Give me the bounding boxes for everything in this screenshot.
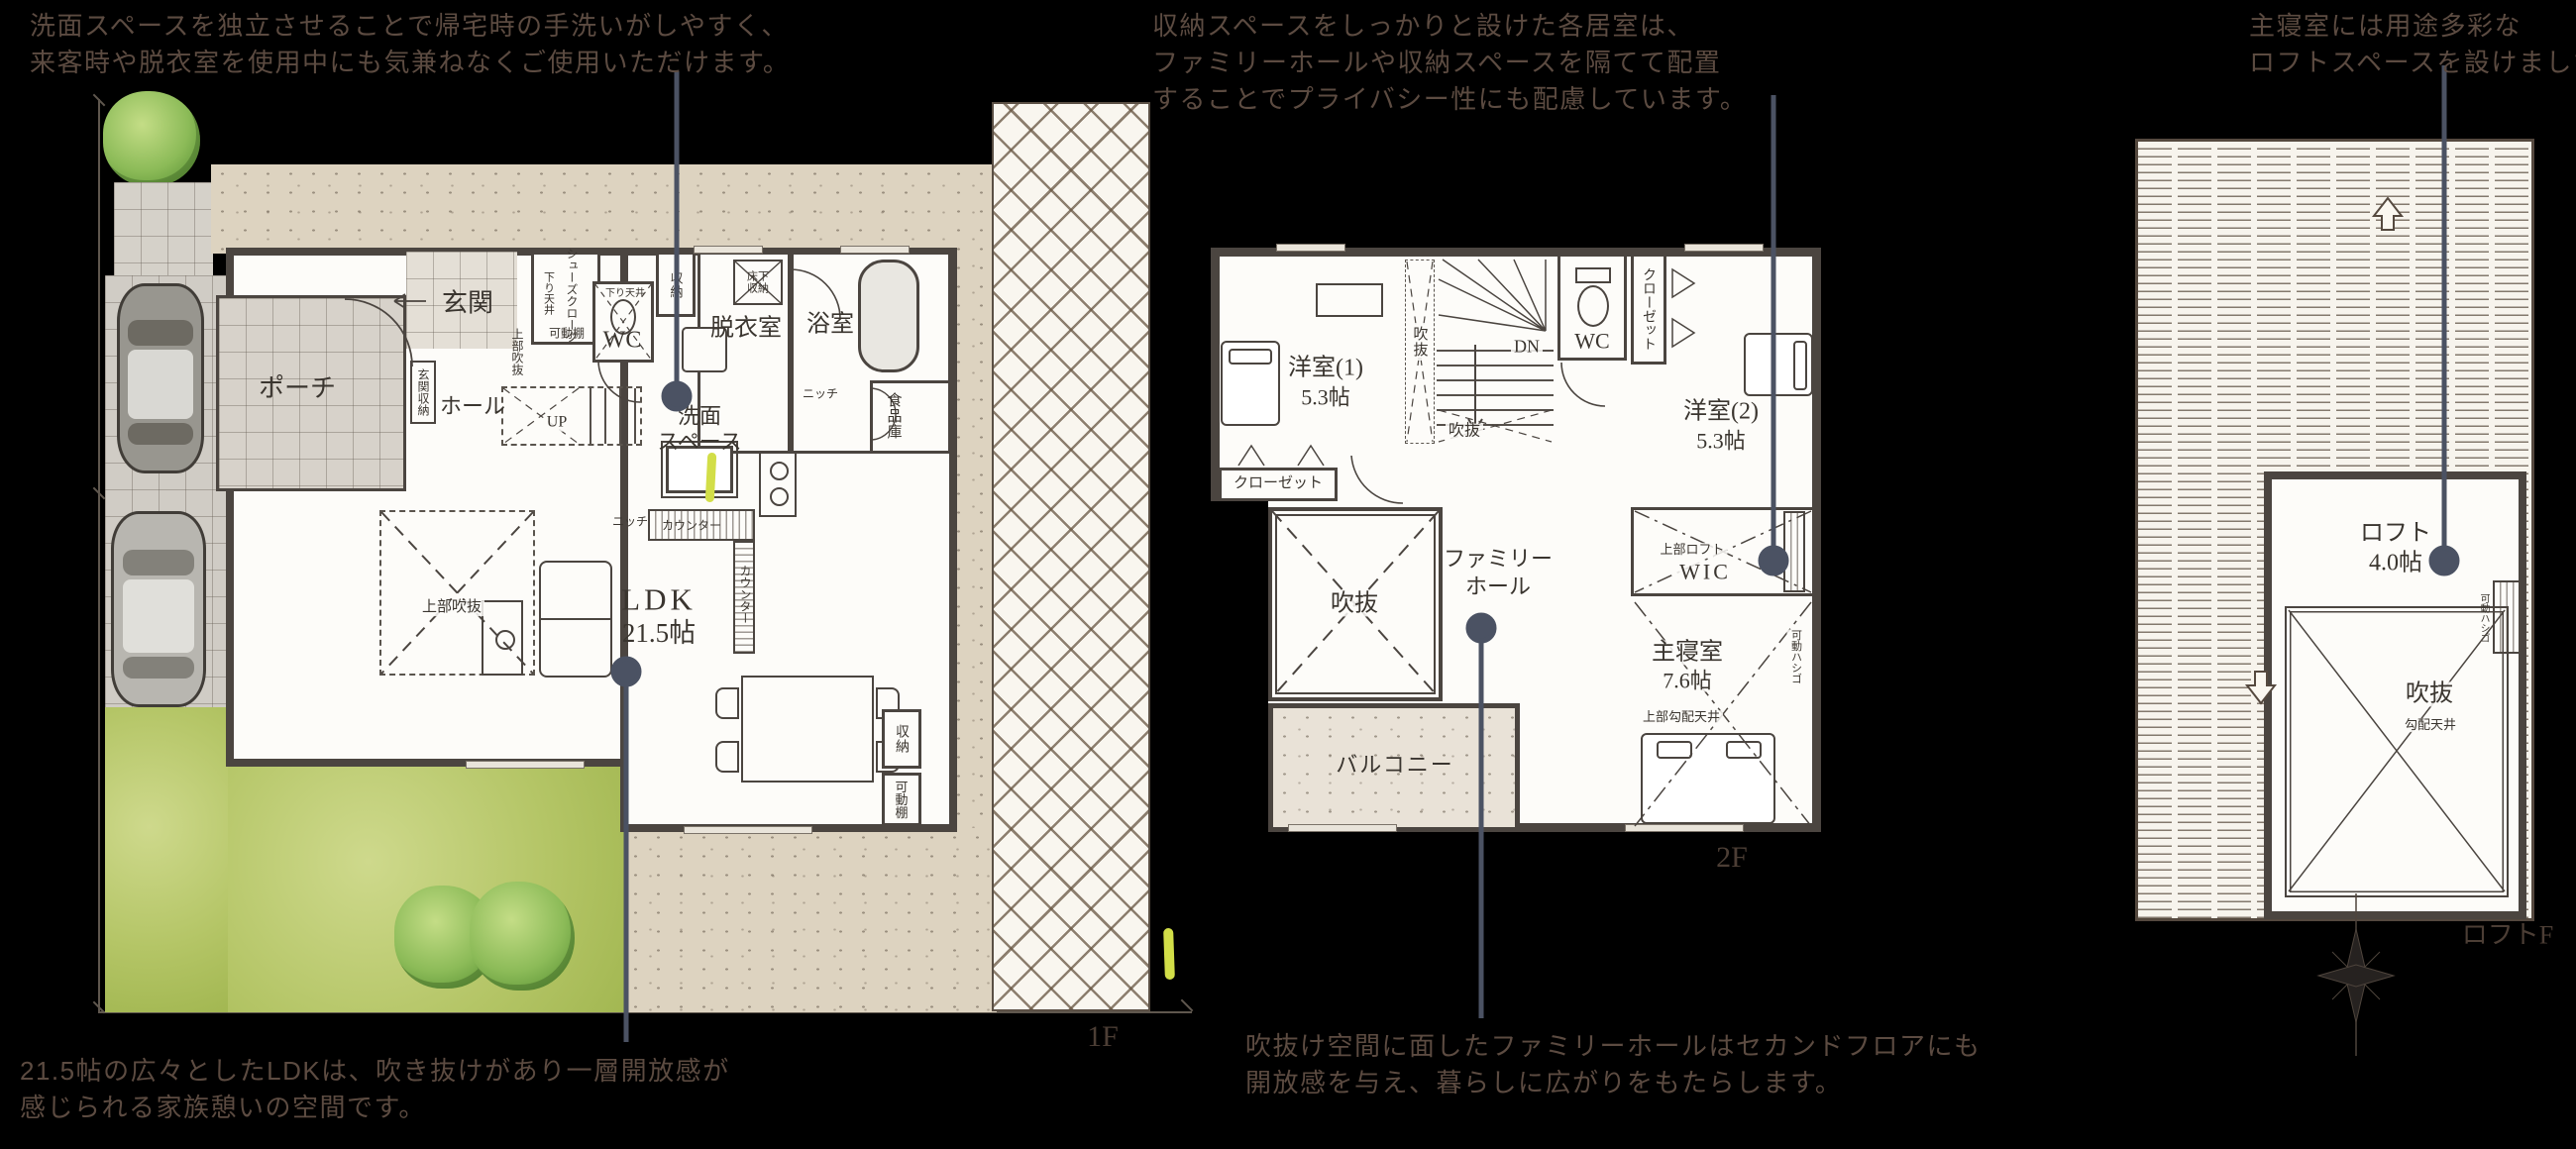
note-line: 21.5帖の広々としたLDKは、吹き抜けがあり一層開放感が <box>20 1053 730 1090</box>
room-label-shoes-shelf: 可動棚 <box>549 328 585 341</box>
ladder-hatch-loft <box>2493 580 2522 654</box>
window <box>684 826 812 834</box>
note-line: 主寝室には用途多彩な <box>2249 8 2576 45</box>
window <box>1276 244 1345 252</box>
room-label-niche-b: ニッチ <box>612 516 648 529</box>
note-line: ロフトスペースを設けました。 <box>2249 45 2576 81</box>
room-label-living-void: 上部吹抜 <box>419 600 484 616</box>
room-label-bedroom1: 洋室(1) <box>1288 356 1363 380</box>
floor-tag-1f: 1F <box>1087 1020 1119 1054</box>
room-label-bedroom2-size: 5.3帖 <box>1696 429 1746 452</box>
room-label-up: UP <box>544 415 570 432</box>
room-label-family-hall-1: ファミリー <box>1444 547 1553 570</box>
site-boundary-hatch <box>992 102 1150 1011</box>
room-label-shoes-ceiling: 下り天井 <box>543 271 554 315</box>
room-label-master-size: 7.6帖 <box>1660 669 1715 691</box>
room-label-counter-b: カウンター <box>739 565 751 624</box>
dimension-tick <box>1181 999 1194 1012</box>
note-line: 感じられる家族憩いの空間です。 <box>20 1090 730 1126</box>
highlighter-mark <box>1163 928 1175 980</box>
room-label-storage-1f: 収納 <box>894 724 908 754</box>
room-label-ldk-size: 21.5帖 <box>622 619 696 647</box>
note-loft: 主寝室には用途多彩な ロフトスペースを設けました。 <box>2249 8 2576 81</box>
room-label-loft-void: 吹抜 <box>2403 681 2456 706</box>
room-label-balcony: バルコニー <box>1336 753 1454 776</box>
room-label-bedroom1-size: 5.3帖 <box>1301 385 1350 408</box>
note-line: 吹抜け空間に面したファミリーホールはセカンドフロアにも <box>1245 1028 1982 1065</box>
room-label-porch: ポーチ <box>259 374 336 401</box>
room-label-entrance-storage: 玄関収納 <box>417 368 429 416</box>
note-line: ファミリーホールや収納スペースを隔てて配置 <box>1152 45 1747 81</box>
room-label-stair-void-2f: 吹抜 <box>1446 424 1483 441</box>
note-line: することでプライバシー性にも配慮しています。 <box>1152 81 1747 118</box>
stepping-stones <box>114 182 213 277</box>
room-label-wc-1f: WC <box>603 328 642 353</box>
room-label-loft-sloped: 勾配天井 <box>2402 718 2459 732</box>
window <box>694 246 763 254</box>
dimension-line-left <box>98 99 100 1012</box>
garden-tree <box>470 882 575 991</box>
room-label-niche-a: ニッチ <box>803 388 838 401</box>
room-label-loft: ロフト <box>2360 521 2431 546</box>
floor-tag-loft: ロフトF <box>2462 915 2553 952</box>
car-2 <box>111 511 206 707</box>
dining-chair <box>715 741 739 773</box>
dining-table <box>741 676 874 783</box>
room-label-floor-storage: 床下収納 <box>745 271 771 294</box>
room-label-ladder-2f: 可動ハシゴ <box>1787 630 1804 684</box>
window <box>1684 244 1764 252</box>
room-label-counter-a: カウンター <box>662 520 721 533</box>
yard-concrete-south <box>624 828 997 1012</box>
note-family-hall: 吹抜け空間に面したファミリーホールはセカンドフロアにも 開放感を与え、暮らしに広… <box>1245 1028 1982 1101</box>
stove <box>759 452 797 517</box>
note-line: 収納スペースをしっかりと設けた各居室は、 <box>1152 8 1747 45</box>
note-privacy: 収納スペースをしっかりと設けた各居室は、 ファミリーホールや収納スペースを隔てて… <box>1152 8 1747 118</box>
room-label-wic: WIC <box>1676 560 1734 582</box>
room-label-pantry: 食品庫 <box>886 392 901 440</box>
room-label-ldk: LDK <box>621 584 697 617</box>
room-label-sloped-2f: 上部勾配天井 <box>1640 710 1723 724</box>
loft-void <box>2285 606 2509 897</box>
room-label-wc-ceiling: 下り天井 <box>605 289 645 300</box>
window <box>1288 824 1397 832</box>
garden-tree <box>103 91 200 186</box>
sofa <box>539 561 612 678</box>
room-label-side-void: 吹抜 <box>1412 323 1427 361</box>
yard-concrete-north <box>211 164 998 254</box>
room-label-master: 主寝室 <box>1649 640 1726 665</box>
room-label-loft-ladder: 可動ハシゴ <box>2478 593 2488 643</box>
room-label-dn: DN <box>1511 338 1543 357</box>
toilet-2f <box>1577 285 1609 327</box>
tv-board <box>482 600 523 676</box>
dining-chair <box>715 687 739 719</box>
room-label-dressing: 脱衣室 <box>710 316 782 341</box>
note-line: 洗面スペースを独立させることで帰宅時の手洗いがしやすく、 <box>30 8 790 45</box>
room-label-upper-loft: 上部ロフト <box>1657 543 1727 557</box>
room-label-laundry-storage: 収納 <box>670 271 683 299</box>
floorplan-sheet: ポーチ 玄関 シューズクローク 下り天井 可動棚 上部吹抜 玄関収納 ホール U… <box>0 0 2576 1149</box>
room-label-hall: ホール <box>440 394 505 417</box>
note-washroom: 洗面スペースを独立させることで帰宅時の手洗いがしやすく、 来客時や脱衣室を使用中… <box>30 8 790 81</box>
room-label-entrance: 玄関 <box>442 289 493 316</box>
room-label-main-void: 吹抜 <box>1328 591 1381 616</box>
toilet-2f-tank <box>1575 267 1611 283</box>
room-label-wash-space: 洗面 <box>678 404 721 427</box>
window <box>466 761 585 769</box>
room-label-stair-void: 上部吹抜 <box>511 328 523 375</box>
bed-bedroom2 <box>1744 333 1813 396</box>
bathtub <box>858 260 919 372</box>
note-line: 来客時や脱衣室を使用中にも気兼ねなくご使用いただけます。 <box>30 45 790 81</box>
lawn-west <box>105 703 230 1012</box>
car-1 <box>117 283 204 473</box>
stairs-1f <box>501 386 642 446</box>
bed-bedroom1 <box>1221 341 1280 426</box>
window <box>1625 824 1744 832</box>
room-label-closet-b: クローゼット <box>1234 476 1323 492</box>
bed-master <box>1641 733 1775 824</box>
pantry-box <box>870 380 951 454</box>
room-label-bathroom: 浴室 <box>806 312 854 337</box>
desk-bedroom1 <box>1316 283 1383 317</box>
room-label-wash-space2: スペース <box>657 430 741 453</box>
ladder-hatch-2f <box>1783 511 1805 592</box>
room-label-loft-size: 4.0帖 <box>2369 551 2422 575</box>
floor-tag-2f: 2F <box>1716 841 1748 875</box>
room-label-shelf-1f: 可動棚 <box>895 781 908 819</box>
window <box>840 246 910 254</box>
plan-2f-notch <box>1211 501 1268 832</box>
stair-treads-1f <box>577 388 640 444</box>
note-line: 開放感を与え、暮らしに広がりをもたらします。 <box>1245 1065 1982 1101</box>
note-ldk: 21.5帖の広々としたLDKは、吹き抜けがあり一層開放感が 感じられる家族憩いの… <box>20 1053 730 1126</box>
room-label-family-hall-2: ホール <box>1465 574 1531 597</box>
room-label-bedroom2: 洋室(2) <box>1683 399 1759 424</box>
room-label-wc-2f: WC <box>1574 329 1609 352</box>
room-label-closet-a: クローゼット <box>1641 267 1655 351</box>
